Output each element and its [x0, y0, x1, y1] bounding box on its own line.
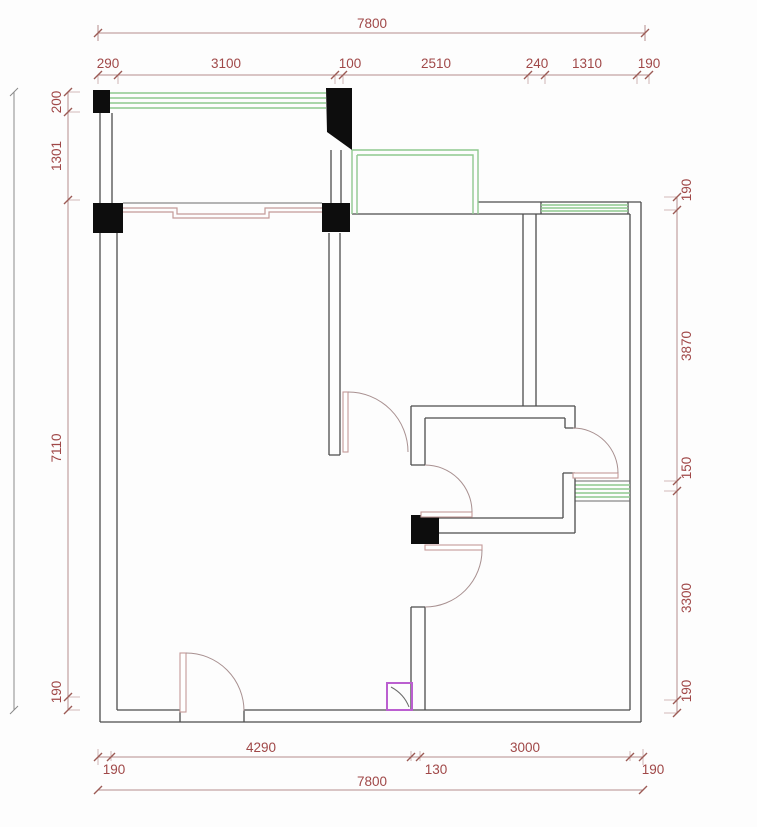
column-wall-right [322, 203, 350, 232]
door-hall-swing-arc [348, 392, 408, 452]
dim-label-right-seg-1: 3870 [679, 331, 694, 361]
structural-columns [93, 88, 439, 544]
door-hall [343, 392, 408, 452]
dim-label-left-seg-0: 200 [49, 91, 64, 114]
dim-label-left-seg-2: 7110 [49, 433, 64, 462]
door-entry-leaf [180, 653, 186, 712]
shaft-window [575, 481, 630, 501]
dim-label-top-seg-1: 3100 [211, 56, 241, 71]
door-bathroom [421, 465, 472, 517]
dim-label-top-seg-0: 290 [97, 56, 120, 71]
dimensions-right: 190 3870 150 3300 190 [664, 179, 694, 717]
interior-walls [329, 214, 575, 710]
door-bedroom-right [573, 428, 618, 478]
dim-label-left-seg-3: 190 [49, 681, 64, 704]
dim-label-top-overall: 7800 [357, 16, 387, 31]
dim-label-bottom-seg-0: 190 [103, 762, 126, 777]
dim-label-bottom-seg-2: 130 [425, 762, 448, 777]
door-bedroom-bottom [425, 545, 482, 607]
column-balcony-left [93, 90, 110, 113]
dim-label-right-seg-4: 190 [679, 680, 694, 703]
door-entry [180, 653, 244, 712]
bay-window [352, 150, 478, 214]
dim-label-left-seg-1: 1301 [49, 141, 64, 171]
dim-label-top-seg-4: 240 [526, 56, 549, 71]
dim-label-bottom-seg-1: 4290 [246, 740, 276, 755]
dim-label-right-seg-3: 3300 [679, 583, 694, 613]
dimensions-top: 7800 290 3100 100 2510 240 1310 190 [94, 16, 660, 84]
floor-plan-drawing: 7800 290 3100 100 2510 240 1310 190 4290… [0, 0, 757, 827]
dim-label-right-seg-2: 150 [679, 457, 694, 480]
dim-label-right-seg-0: 190 [679, 179, 694, 202]
top-wall-window [541, 205, 628, 211]
floor-plan-canvas: 7800 290 3100 100 2510 240 1310 190 4290… [0, 0, 757, 827]
door-bedroom-bottom-swing-arc [425, 550, 482, 607]
door-bathroom-leaf [421, 512, 472, 517]
dim-label-top-seg-3: 2510 [421, 56, 451, 71]
column-center [411, 515, 439, 544]
door-bedroom-right-leaf [573, 473, 618, 478]
floor-drain-box [387, 683, 412, 710]
door-hall-leaf [343, 392, 348, 452]
dimensions-bottom: 4290 3000 190 130 190 7800 [94, 740, 664, 794]
column-wall-left [93, 203, 123, 233]
dimensions-left: 200 1301 7110 190 [10, 88, 80, 714]
door-bedroom-bottom-leaf [425, 545, 482, 550]
door-entry-swing-arc [186, 653, 244, 711]
dim-label-top-seg-6: 190 [638, 56, 661, 71]
door-bedroom-right-swing-arc [573, 428, 618, 473]
balcony-sill [123, 203, 322, 218]
dim-label-top-seg-2: 100 [339, 56, 362, 71]
dim-label-top-seg-5: 1310 [572, 56, 602, 71]
dim-label-bottom-seg-4: 190 [642, 762, 665, 777]
balcony-railing [110, 93, 326, 108]
column-balcony-right [326, 88, 352, 150]
dim-label-bottom-overall: 7800 [357, 774, 387, 789]
door-bathroom-swing-arc [425, 465, 472, 512]
dim-label-bottom-seg-3: 3000 [510, 740, 540, 755]
